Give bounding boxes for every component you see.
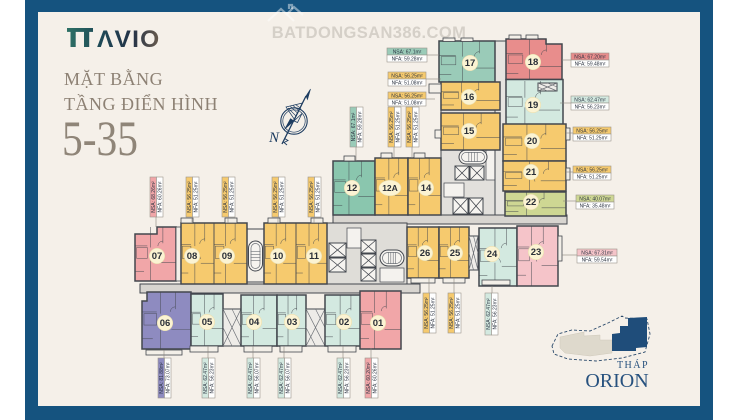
svg-text:NSA: 56.25m²: NSA: 56.25m² — [407, 111, 413, 143]
svg-text:NSA: 62.47m²: NSA: 62.47m² — [248, 362, 254, 394]
svg-text:NSA: 62.47m²: NSA: 62.47m² — [574, 97, 606, 103]
svg-text:NFA: 56.23m²: NFA: 56.23m² — [575, 104, 606, 110]
svg-text:20: 20 — [527, 136, 538, 147]
svg-text:NFA: 59.28m²: NFA: 59.28m² — [358, 111, 364, 142]
svg-text:NSA: 67.1m²: NSA: 67.1m² — [393, 49, 422, 55]
svg-text:10: 10 — [273, 251, 284, 262]
svg-text:24: 24 — [487, 249, 498, 260]
svg-text:NFA: 51.25m²: NFA: 51.25m² — [431, 297, 437, 328]
svg-text:NFA: 56.23m²: NFA: 56.23m² — [345, 362, 351, 393]
svg-text:NFA: 51.25m²: NFA: 51.25m² — [194, 181, 200, 212]
svg-text:NFA: 51.25m²: NFA: 51.25m² — [230, 181, 236, 212]
svg-text:ORION: ORION — [585, 370, 648, 392]
svg-text:11: 11 — [309, 251, 320, 262]
svg-text:16: 16 — [464, 92, 475, 103]
svg-text:NFA: 60.26m²: NFA: 60.26m² — [158, 181, 164, 212]
svg-text:07: 07 — [152, 251, 163, 262]
svg-text:15: 15 — [464, 126, 475, 137]
svg-text:NSA: 68.26m²: NSA: 68.26m² — [151, 181, 157, 213]
svg-text:26: 26 — [420, 248, 431, 259]
svg-text:NFA: 56.23m²: NFA: 56.23m² — [493, 298, 499, 329]
svg-text:NSA: 62.47m²: NSA: 62.47m² — [203, 362, 209, 394]
svg-text:NFA: 56.07m²: NFA: 56.07m² — [286, 362, 292, 393]
svg-text:12A: 12A — [382, 183, 398, 193]
svg-text:NSA: 56.25m²: NSA: 56.25m² — [424, 297, 430, 329]
svg-text:06: 06 — [160, 318, 171, 329]
svg-text:NFA: 51.25m²: NFA: 51.25m² — [456, 297, 462, 328]
svg-text:01: 01 — [373, 318, 384, 329]
svg-text:NSA: 56.25m²: NSA: 56.25m² — [449, 297, 455, 329]
svg-text:19: 19 — [528, 100, 539, 111]
svg-text:NFA: 51.08m²: NFA: 51.08m² — [392, 100, 423, 106]
svg-text:MẶT BẰNG: MẶT BẰNG — [64, 68, 163, 89]
svg-text:NFA: 51.25m²: NFA: 51.25m² — [396, 111, 402, 142]
svg-text:NFA: 35.48m²: NFA: 35.48m² — [580, 203, 611, 209]
svg-text:17: 17 — [465, 58, 476, 69]
svg-text:NFA: 59.48m²: NFA: 59.48m² — [575, 61, 606, 67]
svg-text:NSA: 56.25m²: NSA: 56.25m² — [389, 111, 395, 143]
svg-text:NSA: 60.20m²: NSA: 60.20m² — [366, 362, 372, 394]
svg-text:BATDONGSAN386.COM: BATDONGSAN386.COM — [272, 24, 466, 42]
svg-text:5-35: 5-35 — [62, 110, 138, 166]
svg-text:NSA: 56.25m²: NSA: 56.25m² — [391, 93, 423, 99]
svg-text:18: 18 — [528, 57, 539, 68]
svg-text:NSA: 56.25m²: NSA: 56.25m² — [187, 181, 193, 213]
svg-text:12: 12 — [347, 183, 358, 194]
svg-text:NSA: 56.25m²: NSA: 56.25m² — [309, 181, 315, 213]
svg-text:NSA: 56.25m²: NSA: 56.25m² — [391, 73, 423, 79]
svg-text:09: 09 — [222, 251, 233, 262]
svg-text:NSA: 62.47m²: NSA: 62.47m² — [338, 362, 344, 394]
svg-text:NFA: 51.25m²: NFA: 51.25m² — [414, 111, 420, 142]
svg-text:14: 14 — [421, 183, 432, 194]
svg-text:NSA: 40.07m²: NSA: 40.07m² — [579, 196, 611, 202]
svg-text:23: 23 — [531, 247, 542, 258]
svg-text:NSA: 67.1m²: NSA: 67.1m² — [351, 112, 357, 141]
svg-text:NFA: 60.26m²: NFA: 60.26m² — [373, 362, 379, 393]
svg-text:05: 05 — [202, 317, 213, 328]
svg-text:08: 08 — [187, 251, 198, 262]
svg-text:25: 25 — [450, 248, 461, 259]
svg-text:NSA: 56.25m²: NSA: 56.25m² — [223, 181, 229, 213]
svg-text:NFA: 56.07m²: NFA: 56.07m² — [255, 362, 261, 393]
svg-text:NSA: 81.88m²: NSA: 81.88m² — [159, 362, 165, 394]
svg-text:NSA: 56.25m²: NSA: 56.25m² — [273, 181, 279, 213]
svg-text:NSA: 62.47m²: NSA: 62.47m² — [486, 298, 492, 330]
svg-text:03: 03 — [287, 317, 298, 328]
svg-text:NFA: 51.25m²: NFA: 51.25m² — [316, 181, 322, 212]
svg-text:NSA: 56.25m²: NSA: 56.25m² — [576, 167, 608, 173]
svg-text:NSA: 62.47m²: NSA: 62.47m² — [279, 362, 285, 394]
svg-text:NFA: 51.08m²: NFA: 51.08m² — [392, 80, 423, 86]
svg-text:NSA: 67.31m²: NSA: 67.31m² — [581, 250, 613, 256]
svg-text:NFA: 73.07m²: NFA: 73.07m² — [166, 362, 172, 393]
svg-text:NFA: 51.25m²: NFA: 51.25m² — [280, 181, 286, 212]
svg-text:NSA: 56.25m²: NSA: 56.25m² — [576, 128, 608, 134]
svg-text:04: 04 — [249, 317, 260, 328]
svg-text:22: 22 — [526, 197, 537, 208]
svg-text:ΛVIO: ΛVIO — [97, 26, 160, 53]
svg-text:21: 21 — [526, 167, 537, 178]
svg-text:02: 02 — [339, 317, 350, 328]
svg-text:N: N — [268, 130, 280, 146]
svg-text:NSA: 67.20m²: NSA: 67.20m² — [574, 54, 606, 60]
svg-text:NFA: 56.23m²: NFA: 56.23m² — [210, 362, 216, 393]
svg-text:NFA: 51.25m²: NFA: 51.25m² — [577, 174, 608, 180]
svg-text:NFA: 59.54m²: NFA: 59.54m² — [582, 257, 613, 263]
svg-text:NFA: 59.28m²: NFA: 59.28m² — [392, 56, 423, 62]
svg-text:NFA: 51.25m²: NFA: 51.25m² — [577, 135, 608, 141]
